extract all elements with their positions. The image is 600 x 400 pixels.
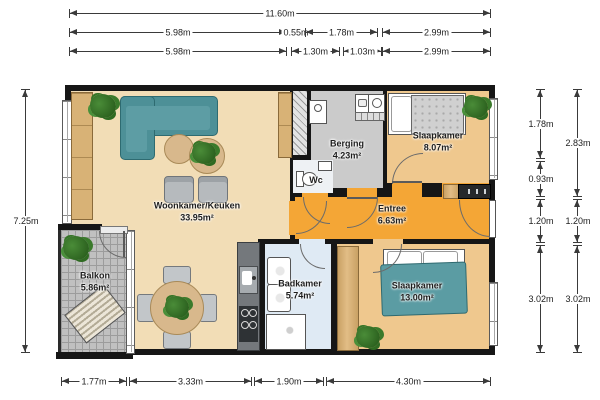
armchair (164, 176, 194, 203)
dimension-line: 0.93m (540, 162, 541, 196)
door-opening (289, 201, 296, 235)
dimension-label: 1.78m (327, 28, 356, 38)
boiler-dial-icon (314, 104, 322, 112)
dimension-line: 2.83m (577, 90, 578, 196)
dimension-label: 2.83m (563, 138, 592, 148)
room-area: 5.86m² (80, 282, 110, 294)
dimension-line: 5.98m (70, 32, 286, 33)
dimension-line: 1.77m (62, 381, 126, 382)
window (489, 98, 498, 180)
blanket (411, 95, 464, 134)
dimension-line: 2.99m (383, 32, 490, 33)
burner-icon (241, 321, 249, 329)
room-name: Woonkamer/Keuken (154, 200, 240, 212)
dimension-line: 5.98m (70, 51, 286, 52)
plant-icon (63, 236, 89, 260)
sofa-seat (126, 106, 147, 152)
shower (266, 314, 306, 350)
room-label-berging: Berging 4.23m² (330, 138, 364, 161)
dimension-line: 1.78m (306, 32, 377, 33)
door-leaf (347, 197, 377, 199)
room-area: 6.63m² (378, 215, 407, 227)
plant-icon (356, 326, 380, 348)
dimension-label: 2.99m (422, 47, 451, 57)
room-label-entree: Entree 6.63m² (378, 203, 407, 226)
room-area: 13.00m² (392, 292, 443, 304)
dimension-label: 1.90m (274, 377, 303, 387)
wc-sink (318, 161, 332, 171)
balcony-wall (56, 352, 133, 359)
room-area: 33.95m² (154, 212, 240, 224)
burner-icon (249, 309, 257, 317)
dimension-label: 1.03m (348, 47, 377, 57)
wardrobe (71, 92, 93, 220)
door-leaf (123, 231, 125, 257)
room-name: Badkamer (278, 278, 322, 290)
front-door-opening (489, 200, 496, 238)
dimension-line: 1.30m (292, 51, 339, 52)
dimension-label: 3.02m (563, 294, 592, 304)
floorplan-page: 11.60m 5.98m 0.55m 1.78m 2.99m 5.98m 1.3… (0, 0, 600, 400)
pillow (391, 96, 412, 132)
window (489, 282, 498, 346)
plant-icon (90, 94, 116, 118)
dimension-line: 7.25m (25, 90, 26, 352)
door-leaf (392, 181, 422, 183)
plant-icon (165, 296, 189, 318)
dimension-label: 3.02m (526, 294, 555, 304)
cabinet (278, 92, 292, 158)
dimension-line: 1.20m (577, 200, 578, 242)
room-label-balkon: Balkon 5.86m² (80, 270, 110, 293)
meter-box (458, 184, 491, 199)
dimension-line: 3.02m (577, 246, 578, 352)
dimension-line: 1.78m (540, 90, 541, 158)
dimension-line: 1.03m (344, 51, 381, 52)
burner-icon (249, 321, 257, 329)
room-name: Berging (330, 138, 364, 150)
dimension-line: 1.90m (255, 381, 323, 382)
door-opening (392, 183, 422, 197)
room-name: Wc (309, 175, 323, 187)
room-name: Balkon (80, 270, 110, 282)
room-label-slaapkamer-onder: Slaapkamer 13.00m² (392, 280, 443, 303)
dimension-line: 2.99m (383, 51, 490, 52)
dimension-line: 1.20m (540, 200, 541, 242)
room-label-wc: Wc (309, 175, 323, 187)
dimension-label: 5.98m (163, 47, 192, 57)
room-area: 4.23m² (330, 150, 364, 162)
washer-door-icon (372, 98, 382, 108)
room-name: Slaapkamer (413, 130, 464, 142)
dimension-label: 1.30m (301, 47, 330, 57)
dimension-line: 11.60m (70, 13, 490, 14)
dimension-line: 4.30m (327, 381, 490, 382)
room-label-woonkamer: Woonkamer/Keuken 33.95m² (154, 200, 240, 223)
shaft-hatch (293, 91, 307, 155)
dimension-label: 11.60m (263, 9, 296, 19)
kitchen-sink-basin (242, 271, 252, 285)
dimension-label: 1.77m (79, 377, 108, 387)
room-area: 5.74m² (278, 290, 322, 302)
dimension-label: 4.30m (394, 377, 423, 387)
plant-icon (192, 142, 216, 164)
dimension-label: 2.99m (422, 28, 451, 38)
room-area: 8.07m² (413, 142, 464, 154)
dimension-label: 5.98m (163, 28, 192, 38)
dimension-line: 3.33m (130, 381, 251, 382)
burner-icon (241, 309, 249, 317)
window (126, 230, 135, 354)
plant-icon (464, 96, 488, 118)
dimension-line: 0.55m (286, 32, 306, 33)
dimension-label: 3.33m (176, 377, 205, 387)
room-name: Entree (378, 203, 407, 215)
faucet-icon (252, 276, 256, 280)
dimension-label: 1.78m (526, 119, 555, 129)
armchair (198, 176, 228, 203)
dimension-label: 1.20m (563, 216, 592, 226)
dimension-line: 3.02m (540, 246, 541, 352)
shelf (355, 112, 385, 121)
room-label-badkamer: Badkamer 5.74m² (278, 278, 322, 301)
room-name: Slaapkamer (392, 280, 443, 292)
dimension-label: 0.93m (526, 174, 555, 184)
basin-icon (358, 99, 367, 107)
dimension-label: 7.25m (11, 216, 40, 226)
dimension-label: 1.20m (526, 216, 555, 226)
room-label-slaapkamer-boven: Slaapkamer 8.07m² (413, 130, 464, 153)
